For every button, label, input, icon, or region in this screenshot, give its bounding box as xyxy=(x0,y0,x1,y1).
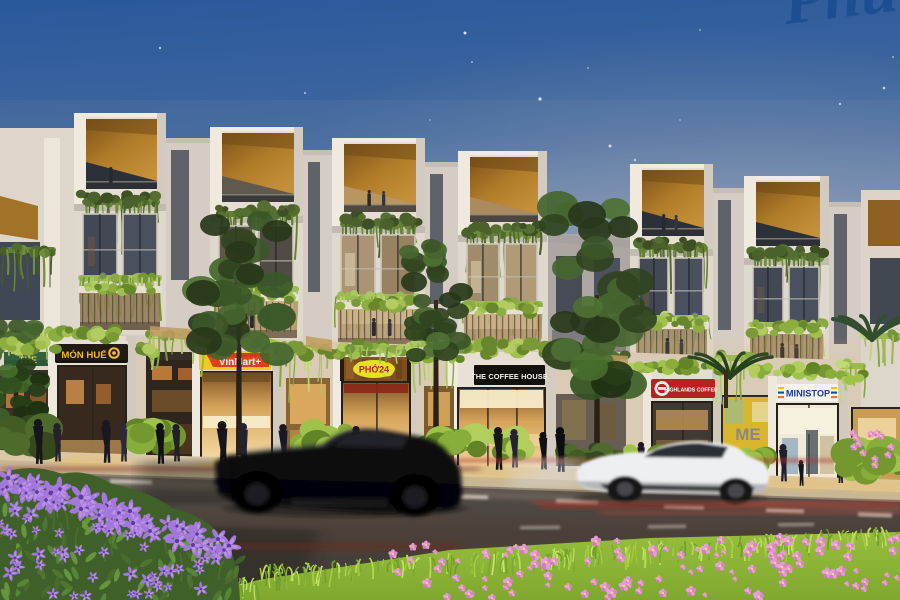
svg-text:MINISTOP: MINISTOP xyxy=(786,389,830,399)
svg-text:HIGHLANDS COFFEE: HIGHLANDS COFFEE xyxy=(664,388,718,394)
svg-text:ME: ME xyxy=(735,425,761,444)
svg-text:THE COFFEE HOUSE: THE COFFEE HOUSE xyxy=(471,372,548,381)
svg-text:PHỞ24: PHỞ24 xyxy=(359,364,389,375)
